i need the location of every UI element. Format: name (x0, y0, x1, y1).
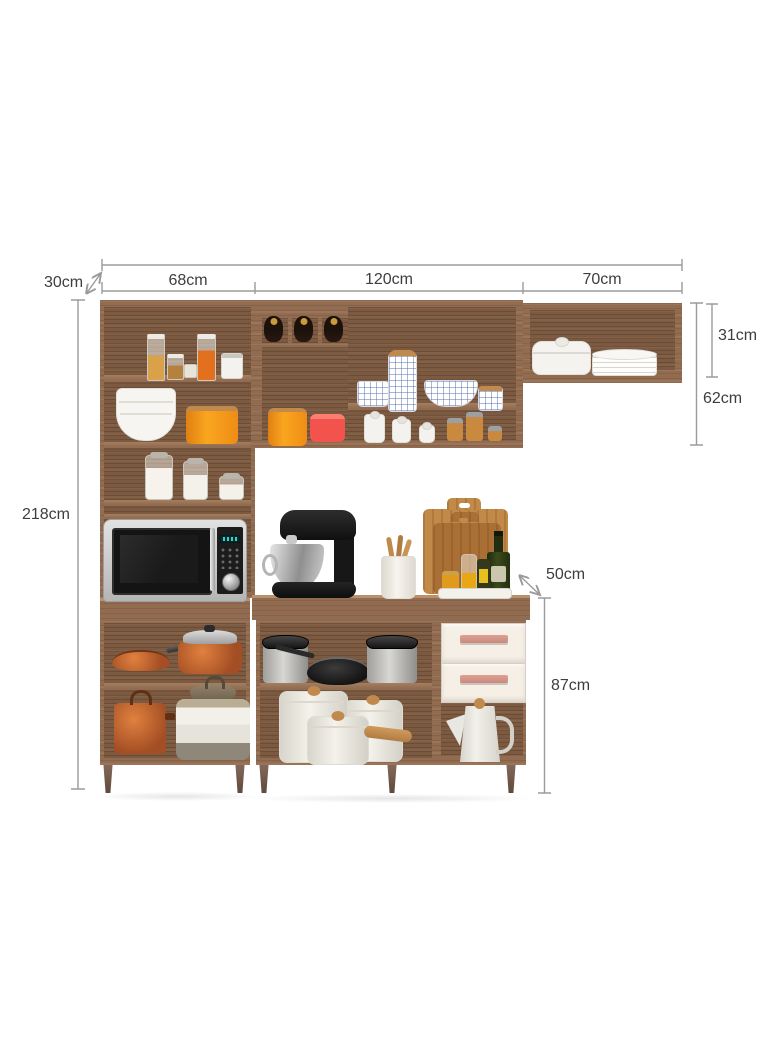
drawer-top (441, 623, 526, 664)
floor-shadow-middle (250, 794, 534, 803)
striped-stockpot-lid-handle (205, 676, 225, 689)
white-tin (221, 353, 243, 379)
right-width-label: 70cm (562, 271, 642, 289)
oil-tray (438, 588, 512, 599)
mixer-attachment-hub (286, 535, 297, 544)
sugar-jar (183, 461, 208, 500)
microwave-control-panel (217, 527, 243, 594)
oil-bottle-label (479, 569, 488, 583)
coffee-pot-body (460, 706, 500, 762)
spice-jar-1 (447, 418, 463, 441)
oil-cruet (461, 554, 477, 592)
wine-bottle-2 (294, 316, 313, 342)
stand-mixer (266, 510, 360, 598)
left-hutch-shelf-3 (104, 500, 251, 508)
white-jar-3 (419, 425, 435, 443)
microwave (103, 519, 247, 602)
pink-canister (310, 414, 345, 442)
drawer-bottom (441, 663, 526, 703)
utensil-crock (381, 556, 416, 599)
product-dimension-diagram: 258cm 68cm 120cm 70cm 30cm 218cm 31cm 62… (0, 0, 780, 1040)
small-glass-jar (219, 476, 244, 500)
coffee-pot-knob (474, 698, 485, 709)
flour-jar (145, 455, 173, 500)
bowl-stack-line-1 (119, 401, 172, 403)
olive-oil-label (491, 566, 506, 582)
upper-depth-label: 30cm (44, 274, 83, 292)
pantry-container-tall (147, 334, 165, 381)
mixer-head (280, 510, 356, 540)
wine-bottle-3 (324, 316, 343, 342)
coffee-pot (446, 698, 512, 762)
plaid-creamer (357, 381, 389, 407)
total-height-label: 218cm (20, 506, 72, 524)
plaid-jar (478, 386, 503, 411)
striped-stockpot-body (176, 699, 250, 760)
orange-canister-middle (268, 408, 307, 446)
microwave-door (112, 528, 212, 595)
copper-casserole-knob (204, 625, 215, 632)
coffee-pot-handle (496, 716, 514, 754)
olive-oil-bottle (487, 552, 510, 593)
microwave-dial (222, 573, 240, 591)
copper-frying-pan (112, 650, 170, 671)
copper-casserole-lid (183, 630, 237, 644)
plaid-bottle (388, 350, 417, 412)
pantry-jar-mini (184, 364, 197, 378)
orange-canister-left (186, 406, 238, 444)
mixer-bowl-handle (262, 554, 278, 576)
middle-width-label: 120cm (345, 271, 433, 289)
copper-pot-side-handle (165, 713, 175, 720)
right-upper-height-label: 31cm (718, 327, 757, 345)
middle-upper-height-label: 62cm (703, 390, 742, 408)
base-height-label: 87cm (551, 677, 590, 695)
spice-jar-2 (466, 412, 483, 441)
pantry-container-lentils (197, 334, 216, 381)
microwave-handle (210, 528, 215, 591)
mixer-base (272, 582, 356, 598)
stainless-pot-2 (367, 644, 417, 683)
left-width-label: 68cm (148, 272, 228, 290)
copper-pot (114, 703, 166, 754)
base-depth-label: 50cm (546, 566, 585, 584)
copper-casserole (178, 641, 242, 674)
pantry-container-short (167, 354, 184, 380)
microwave-door-glass (120, 535, 198, 583)
bowl-stack-line-2 (120, 413, 171, 415)
floor-shadow-left (96, 792, 260, 801)
microwave-buttons (220, 547, 240, 569)
copper-pot-handle (130, 690, 152, 705)
wine-bottle-1 (264, 316, 283, 342)
white-jar-1 (364, 414, 385, 443)
casserole-dish (532, 341, 591, 375)
microwave-display (220, 535, 240, 543)
oil-bottle-labeled (477, 559, 490, 590)
total-width-label: 258cm (350, 250, 410, 259)
white-jar-2 (392, 419, 411, 443)
white-saucepan (307, 716, 369, 765)
microwave-display-digits (223, 537, 237, 541)
black-frying-pan (307, 657, 369, 685)
bowl-stack (116, 388, 176, 441)
plate-stack (592, 352, 657, 376)
spice-jar-3 (488, 426, 502, 441)
